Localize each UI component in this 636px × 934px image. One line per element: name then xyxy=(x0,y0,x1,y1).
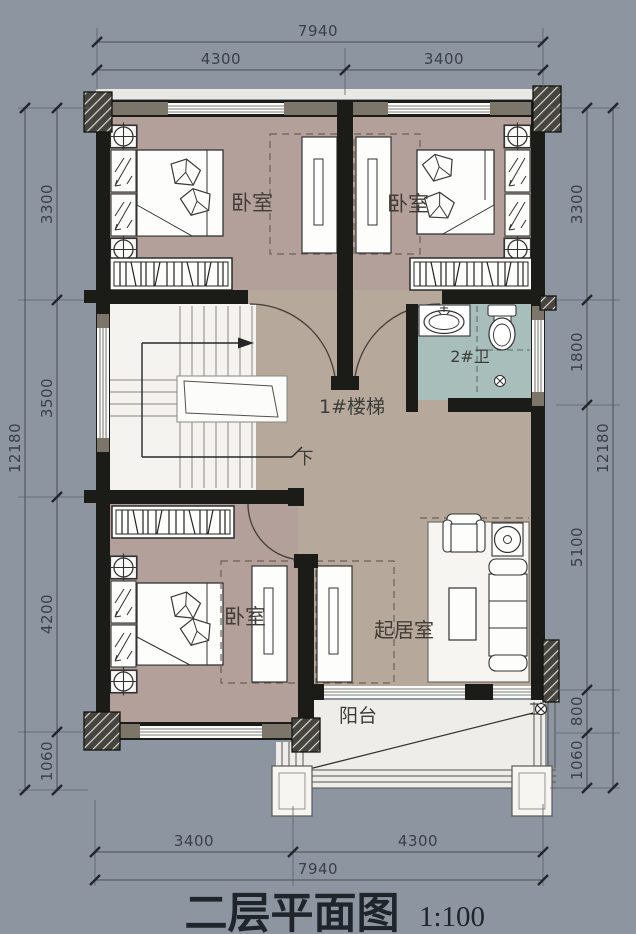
dim-bottom-seg1: 3400 xyxy=(174,832,214,850)
window-bottom-bedroom xyxy=(140,726,262,738)
dim-right-seg4: 800 xyxy=(568,696,586,726)
toilet-icon xyxy=(488,305,516,350)
bedroom-top-left-label: 卧室 xyxy=(231,191,273,215)
dim-left-total: 12180 xyxy=(6,423,24,473)
dim-left-seg1: 3300 xyxy=(38,184,56,224)
stair-down-label: 下 xyxy=(297,449,314,469)
living-room-label: 起居室 xyxy=(374,618,434,642)
bedroom-bottom-label: 卧室 xyxy=(224,605,266,629)
drawing-title: 二层平面图 1:100 xyxy=(185,891,486,934)
floor-drain-icon xyxy=(495,376,506,387)
light-symbol-icon xyxy=(110,668,138,696)
window-left-stair xyxy=(97,314,109,452)
side-table-icon xyxy=(492,523,523,556)
dim-bottom-total: 7940 xyxy=(298,860,338,878)
dim-left-seg3: 4200 xyxy=(38,594,56,634)
wardrobe-icon xyxy=(111,625,136,667)
desk-icon xyxy=(317,566,352,682)
wardrobe-icon xyxy=(505,150,530,192)
light-symbol-icon xyxy=(110,554,138,582)
floor-plan-page: 7940 4300 3400 3400 4300 7940 3300 3500 … xyxy=(0,0,636,934)
light-symbol-icon xyxy=(504,123,532,151)
balcony-column xyxy=(272,766,312,816)
wardrobe-icon xyxy=(111,194,136,236)
balcony-label: 阳台 xyxy=(339,705,377,727)
bed-icon xyxy=(137,150,223,236)
stair-label: 1#楼梯 xyxy=(319,396,385,418)
wardrobe-icon xyxy=(111,150,136,192)
desk-icon xyxy=(356,137,391,253)
dim-left-seg4: 1060 xyxy=(38,741,56,781)
bookshelf-icon xyxy=(410,258,532,290)
dim-top-seg1: 4300 xyxy=(201,50,241,68)
wardrobe-icon xyxy=(111,581,136,623)
coffee-table-icon xyxy=(449,588,476,640)
roof-edge-strip xyxy=(96,89,545,99)
window-top-left xyxy=(168,103,284,114)
dim-bottom-seg2: 4300 xyxy=(398,832,438,850)
window-top-right xyxy=(388,103,490,114)
dim-right-total: 12180 xyxy=(594,423,612,473)
bathroom-label: 2#卫 xyxy=(450,347,490,366)
light-symbol-icon xyxy=(110,123,138,151)
dim-left-seg2: 3500 xyxy=(38,378,56,418)
dim-right-seg5: 1060 xyxy=(568,740,586,780)
dim-top-total: 7940 xyxy=(298,22,338,40)
desk-icon xyxy=(302,137,337,253)
dim-right-seg3: 5100 xyxy=(568,527,586,567)
dim-right-seg1: 3300 xyxy=(568,184,586,224)
bookshelf-icon xyxy=(112,506,234,538)
sofa-icon xyxy=(489,559,527,671)
bed-icon xyxy=(137,583,223,665)
wardrobe-icon xyxy=(505,194,530,236)
sink-icon xyxy=(419,305,470,336)
plan-scale: 1:100 xyxy=(419,901,485,933)
dim-top-seg2: 3400 xyxy=(424,50,464,68)
window-bathroom xyxy=(532,306,544,406)
armchair-icon xyxy=(443,514,485,552)
bookshelf-icon xyxy=(110,258,232,290)
sliding-door-balcony xyxy=(324,686,531,698)
plan-title: 二层平面图 xyxy=(185,891,400,934)
dim-right-seg2: 1800 xyxy=(568,332,586,372)
balcony-column xyxy=(512,766,552,816)
floor-plan-drawing: 7940 4300 3400 3400 4300 7940 3300 3500 … xyxy=(0,0,636,934)
bedroom-top-right-label: 卧室 xyxy=(387,192,429,216)
